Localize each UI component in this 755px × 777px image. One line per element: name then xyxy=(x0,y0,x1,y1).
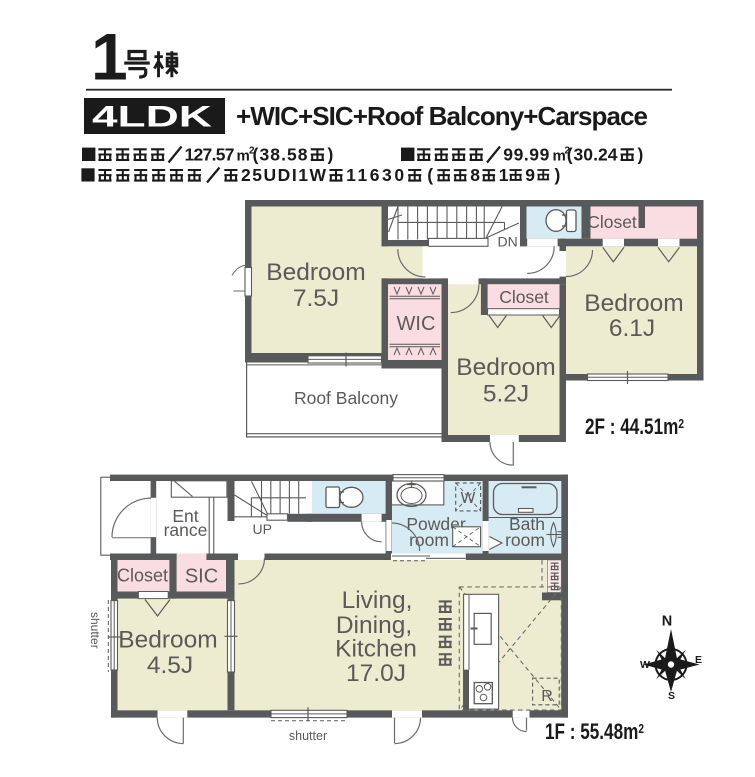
svg-text:17.0J: 17.0J xyxy=(346,660,406,687)
svg-text:Closet: Closet xyxy=(117,566,168,586)
svg-text:2F : 44.51m2: 2F : 44.51m2 xyxy=(585,414,684,439)
svg-text:(: ( xyxy=(567,145,573,165)
svg-text:room: room xyxy=(505,530,545,550)
svg-text:25UDI1W: 25UDI1W xyxy=(241,165,326,185)
svg-text:): ) xyxy=(328,145,334,165)
svg-text:N: N xyxy=(662,614,672,630)
svg-text:4.5J: 4.5J xyxy=(147,652,193,679)
svg-text:Roof Balcony: Roof Balcony xyxy=(294,388,398,408)
svg-text:W: W xyxy=(461,490,476,507)
svg-text:shutter: shutter xyxy=(289,729,327,743)
svg-text:5.2J: 5.2J xyxy=(483,381,529,408)
svg-text:UP: UP xyxy=(253,521,272,537)
svg-text:Closet: Closet xyxy=(499,287,549,307)
svg-text:1F : 55.48m2: 1F : 55.48m2 xyxy=(545,719,644,744)
svg-text:30.24: 30.24 xyxy=(574,145,618,165)
svg-text:SIC: SIC xyxy=(185,566,218,588)
svg-text:1: 1 xyxy=(499,165,509,185)
svg-text:+WIC+SIC+Roof Balcony+Carspace: +WIC+SIC+Roof Balcony+Carspace xyxy=(236,101,648,131)
svg-text:R: R xyxy=(541,688,553,705)
svg-text:WIC: WIC xyxy=(397,313,436,335)
svg-text:8: 8 xyxy=(470,165,480,185)
svg-text:): ) xyxy=(555,165,561,185)
svg-text:DN: DN xyxy=(498,234,518,250)
svg-text:Bedroom: Bedroom xyxy=(266,259,365,286)
svg-text:Bedroom: Bedroom xyxy=(584,290,683,317)
svg-text:Bedroom: Bedroom xyxy=(118,627,217,654)
svg-text:(: ( xyxy=(253,145,259,165)
svg-text:4LDK: 4LDK xyxy=(92,101,213,134)
svg-text:99.99: 99.99 xyxy=(503,145,549,165)
svg-text:shutter: shutter xyxy=(88,612,102,649)
svg-text:Bedroom: Bedroom xyxy=(456,354,555,381)
svg-text:m: m xyxy=(237,148,250,165)
svg-text:38.58: 38.58 xyxy=(260,145,308,165)
svg-text:E: E xyxy=(695,654,702,666)
svg-text:W: W xyxy=(640,659,650,671)
svg-text:): ) xyxy=(638,145,644,165)
svg-text:Closet: Closet xyxy=(587,212,637,232)
svg-text:room: room xyxy=(409,530,449,550)
svg-text:1: 1 xyxy=(91,20,128,94)
svg-text:11630: 11630 xyxy=(346,165,404,185)
svg-text:Kitchen: Kitchen xyxy=(335,636,417,663)
svg-text:S: S xyxy=(668,690,675,702)
svg-text:9: 9 xyxy=(525,165,535,185)
svg-text:7.5J: 7.5J xyxy=(293,285,339,312)
svg-text:6.1J: 6.1J xyxy=(609,315,655,342)
svg-text:(: ( xyxy=(427,165,433,185)
svg-text:rance: rance xyxy=(164,520,208,540)
svg-text:127.57: 127.57 xyxy=(185,145,235,165)
svg-text:Living,: Living, xyxy=(342,587,413,614)
